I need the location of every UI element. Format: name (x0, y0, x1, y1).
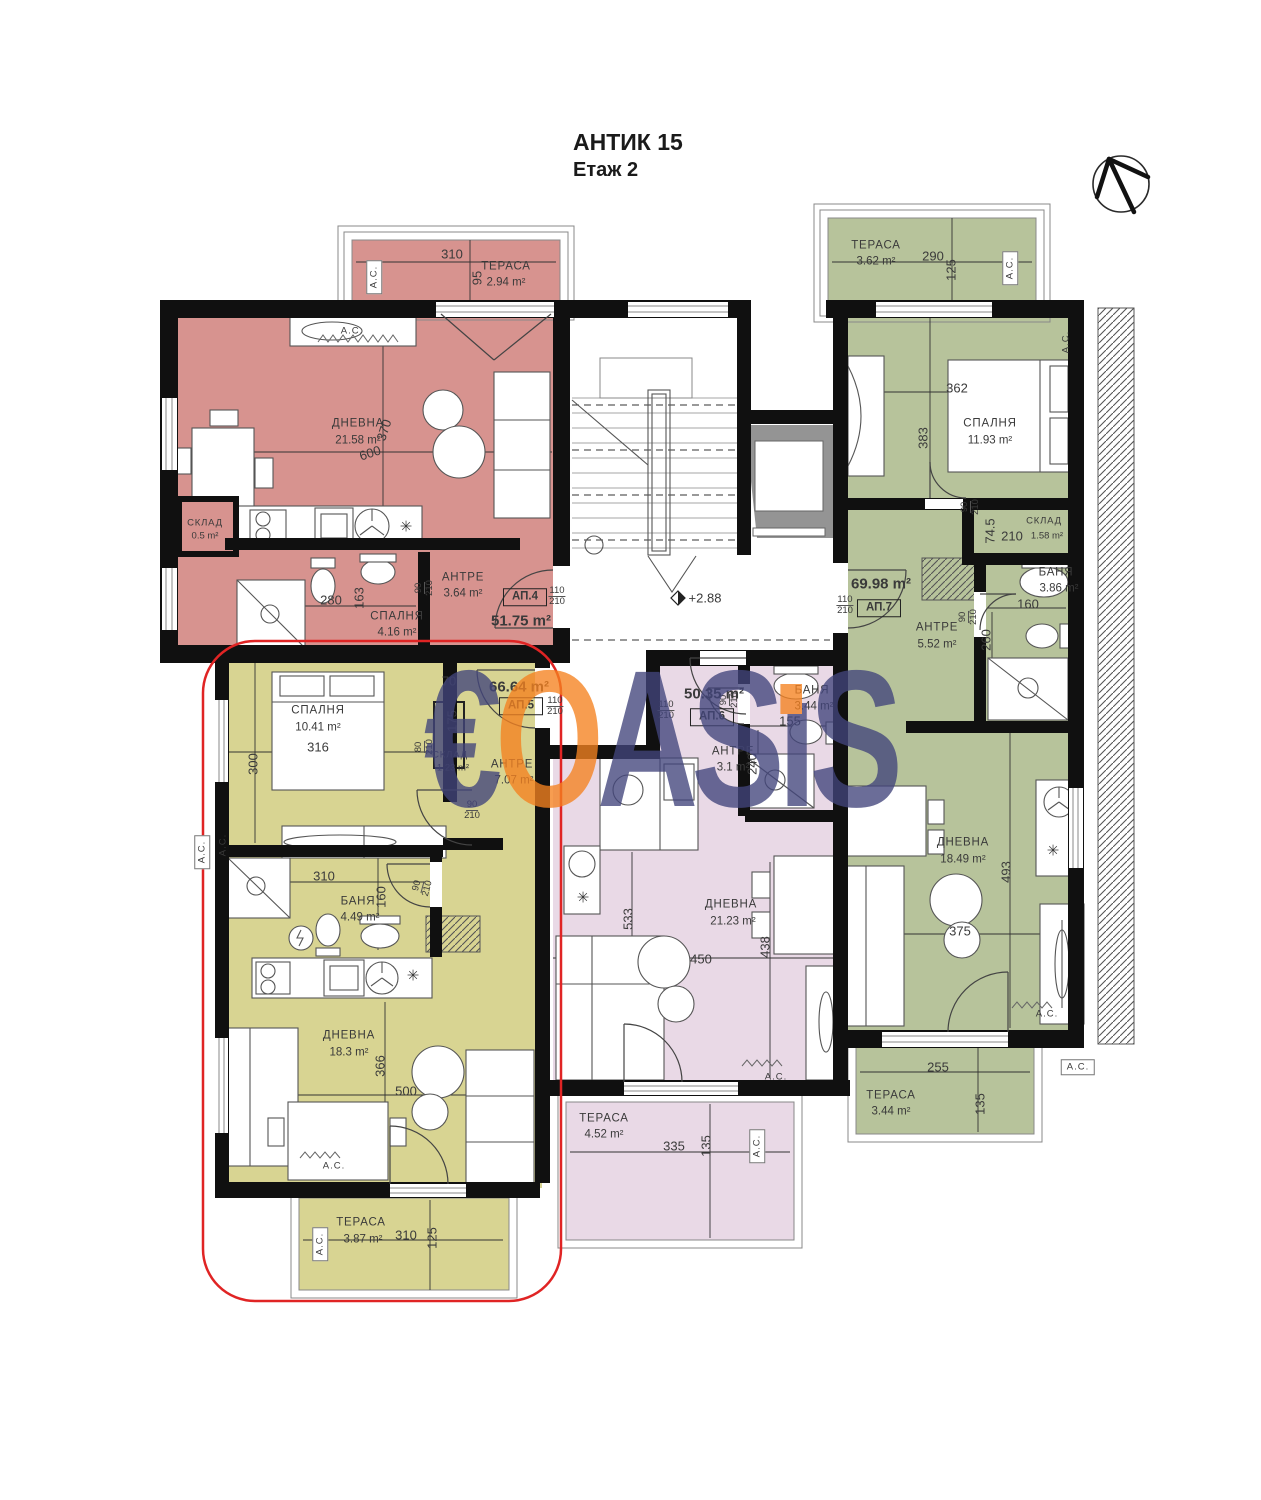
ap4-bedroom-area: 4.16 m² (378, 627, 417, 639)
adjacent-building-hatch (1098, 308, 1134, 1044)
elevator (745, 425, 833, 538)
ap6-terrace-ac: А.С. (749, 1129, 765, 1163)
ap7-terrace-bottom-dim-255: 255 (927, 1061, 949, 1074)
ap7-living-dim-375: 375 (949, 925, 971, 938)
ap7-bath-dim-160: 160 (1017, 598, 1039, 611)
ap5-bedroom-name: СПАЛНЯ (291, 705, 344, 717)
north-arrow-icon (1093, 156, 1149, 212)
ap5-living-name: ДНЕВНА (323, 1030, 375, 1042)
ap4-terrace-name: ТЕРАСА (481, 261, 531, 273)
ap7-living-ac: А.С. (1036, 1009, 1058, 1019)
ap7-storage-dim-210: 210 (1001, 530, 1023, 543)
ap4-bedroom-name: СПАЛНЯ (370, 611, 423, 623)
ap7-hall-area: 5.52 m² (918, 639, 957, 651)
ap7-terrace-top-dim-h: 125 (945, 259, 958, 281)
ap5-terrace-name: ТЕРАСА (336, 1217, 386, 1229)
ap6-hall-name: АНТРЕ (712, 746, 754, 758)
ap4-dim-280: 280 (320, 594, 342, 607)
ap7-terrace-top-dim-w: 290 (922, 250, 944, 263)
ap5-terrace-area: 3.87 m² (344, 1234, 383, 1246)
level-mark: +2.88 (689, 592, 722, 605)
ap7-living-area: 18.49 m² (940, 854, 985, 866)
ap7-unit-label: АП.7 (857, 599, 901, 617)
ap5-storage-dim-175: 175 (446, 710, 459, 732)
ap7-bath-dim-260: 260 (980, 629, 993, 651)
ap5-door-110-210: 110210 (546, 696, 563, 716)
ap7-terrace-top-area: 3.62 m² (857, 256, 896, 268)
ap5-living-dim-500: 500 (395, 1085, 417, 1098)
ap4-ac: А.С. (341, 326, 363, 336)
ap5-bath-dim-160: 160 (375, 886, 388, 908)
ap5-storage-dim-70: 70 (442, 675, 456, 688)
ap6-terrace-dim-335: 335 (663, 1140, 685, 1153)
ap7-living-name: ДНЕВНА (937, 837, 989, 849)
ap4-hall-area: 3.64 m² (444, 588, 483, 600)
ap7-door-110-210: 110210 (836, 595, 853, 615)
ap5-unit-label: АП.5 (499, 697, 543, 715)
ap5-ceiling-light-symbol: ✳ (407, 969, 420, 984)
ap4-terrace-dim-w: 310 (441, 248, 463, 261)
ap5-storage-area: 1.23 m² (437, 763, 469, 773)
ap5-hall-name: АНТРЕ (491, 759, 533, 771)
ap6-living-area: 21.23 m² (710, 916, 755, 928)
ap5-terrace-dim-310: 310 (395, 1229, 417, 1242)
ap4-terrace-dim-h: 95 (471, 271, 484, 285)
ap6-bath-area: 3.44 m² (795, 701, 834, 713)
ap4-ceiling-light-symbol: ✳ (400, 520, 413, 535)
ap6-ceiling-light-symbol: ✳ (577, 891, 590, 906)
ap5-storage-door: 80210 (414, 739, 434, 755)
ap4-total-area: 51.75 m² (491, 614, 551, 629)
floor-plan-page: АНТИК 15 Етаж 2 ТЕРАСА2.94 m²А.С.31095А.… (0, 0, 1261, 1500)
ap4-storage-area: 0.5 m² (192, 531, 219, 541)
ap7-terrace-bottom-ac: А.С. (1061, 1059, 1095, 1075)
ap5-bath-name: БАНЯ (341, 896, 376, 908)
ap7-total-area: 69.98 m² (851, 577, 911, 592)
ap7-bedroom-area: 11.93 m² (968, 435, 1013, 447)
ap7-hall-name: АНТРЕ (916, 622, 958, 634)
ap4-door-90-210: 90210 (414, 580, 434, 596)
ap7-bath-area: 3.86 m² (1040, 583, 1079, 595)
ap6-living-dim-533: 533 (622, 908, 635, 930)
ap4-unit-label: АП.4 (503, 588, 547, 606)
plan-floor-subtitle: Етаж 2 (573, 157, 683, 183)
ap7-storage-area: 1.58 m² (1031, 531, 1063, 541)
ap7-storage-dim-745: 74.5 (984, 518, 997, 543)
ap7-bedroom-name: СПАЛНЯ (963, 418, 1016, 430)
plan-title: АНТИК 15 (573, 128, 683, 157)
ap5-bath-dim-310: 310 (313, 870, 335, 883)
ap5-ac-outer: А.С. (194, 835, 210, 869)
ap6-hall-area: 3.1 m² (717, 762, 750, 774)
ap5-hall-area: 7.07 m² (495, 775, 534, 787)
ap5-living-ac: А.С. (323, 1161, 345, 1171)
ap6-living-ac: А.С. (765, 1072, 787, 1082)
ap6-bath-door: 90210 (719, 692, 739, 708)
floor-plan-drawing (0, 0, 1261, 1500)
ap5-living-dim-366: 366 (374, 1055, 387, 1077)
ap7-bedroom-dim-362: 362 (946, 382, 968, 395)
ap5-bedroom-dim-316: 316 (307, 741, 329, 754)
ap5-total-area: 66.64 m² (489, 680, 549, 695)
ap5-bedroom-door: 90210 (464, 800, 480, 820)
ap6-terrace-area: 4.52 m² (585, 1129, 624, 1141)
ap4-door-110-210: 110210 (548, 586, 565, 606)
ap7-bath-door: 90210 (958, 609, 978, 625)
ap6-bath-dim-155: 155 (779, 715, 801, 728)
ap5-ac-inner: А.С. (218, 834, 228, 856)
ap7-bath-name: БАНЯ (1039, 567, 1074, 579)
ap7-wardrobe-ac: А.С. (1061, 331, 1071, 353)
ap7-storage-name: СКЛАД (1026, 516, 1062, 526)
ap7-terrace-top-ac: А.С. (1002, 251, 1018, 285)
ap4-terrace-ac: А.С. (366, 260, 382, 294)
ap7-living-dim-493: 493 (1000, 861, 1013, 883)
ap6-bath-name: БАНЯ (795, 685, 830, 697)
ap7-terrace-bottom-name: ТЕРАСА (866, 1090, 916, 1102)
ap5-terrace-dim-125: 125 (426, 1227, 439, 1249)
ap4-storage-name: СКЛАД (187, 518, 223, 528)
ap4-hall-name: АНТРЕ (442, 572, 484, 584)
ap6-terrace-name: ТЕРАСА (579, 1113, 629, 1125)
ap5-bedroom-area: 10.41 m² (295, 722, 340, 734)
ap5-living-area: 18.3 m² (330, 1047, 369, 1059)
ap5-storage-name: СКЛАД (432, 750, 468, 760)
ap7-storage-door: 90210 (960, 499, 980, 515)
ap7-bedroom-dim-383: 383 (917, 427, 930, 449)
ap4-dim-163: 163 (353, 587, 366, 609)
ap7-terrace-bottom-area: 3.44 m² (872, 1106, 911, 1118)
ap4-terrace-area: 2.94 m² (487, 277, 526, 289)
ap6-living-dim-450: 450 (690, 953, 712, 966)
ap6-living-dim-438: 438 (759, 936, 772, 958)
title-block: АНТИК 15 Етаж 2 (573, 128, 683, 183)
ap6-terrace-dim-135: 135 (700, 1135, 713, 1157)
ap6-door-110-210: 110210 (657, 700, 674, 720)
ap5-bedroom-dim-300: 300 (247, 753, 260, 775)
ap5-terrace-ac: А.С. (312, 1227, 328, 1261)
ap6-living-name: ДНЕВНА (705, 899, 757, 911)
ap7-ceiling-light-symbol: ✳ (1047, 844, 1060, 859)
ap7-terrace-top-name: ТЕРАСА (851, 240, 901, 252)
ap7-terrace-bottom-dim-135: 135 (974, 1093, 987, 1115)
ap6-unit-label: АП.6 (690, 708, 734, 726)
ap5-bath-area: 4.49 m² (341, 912, 380, 924)
